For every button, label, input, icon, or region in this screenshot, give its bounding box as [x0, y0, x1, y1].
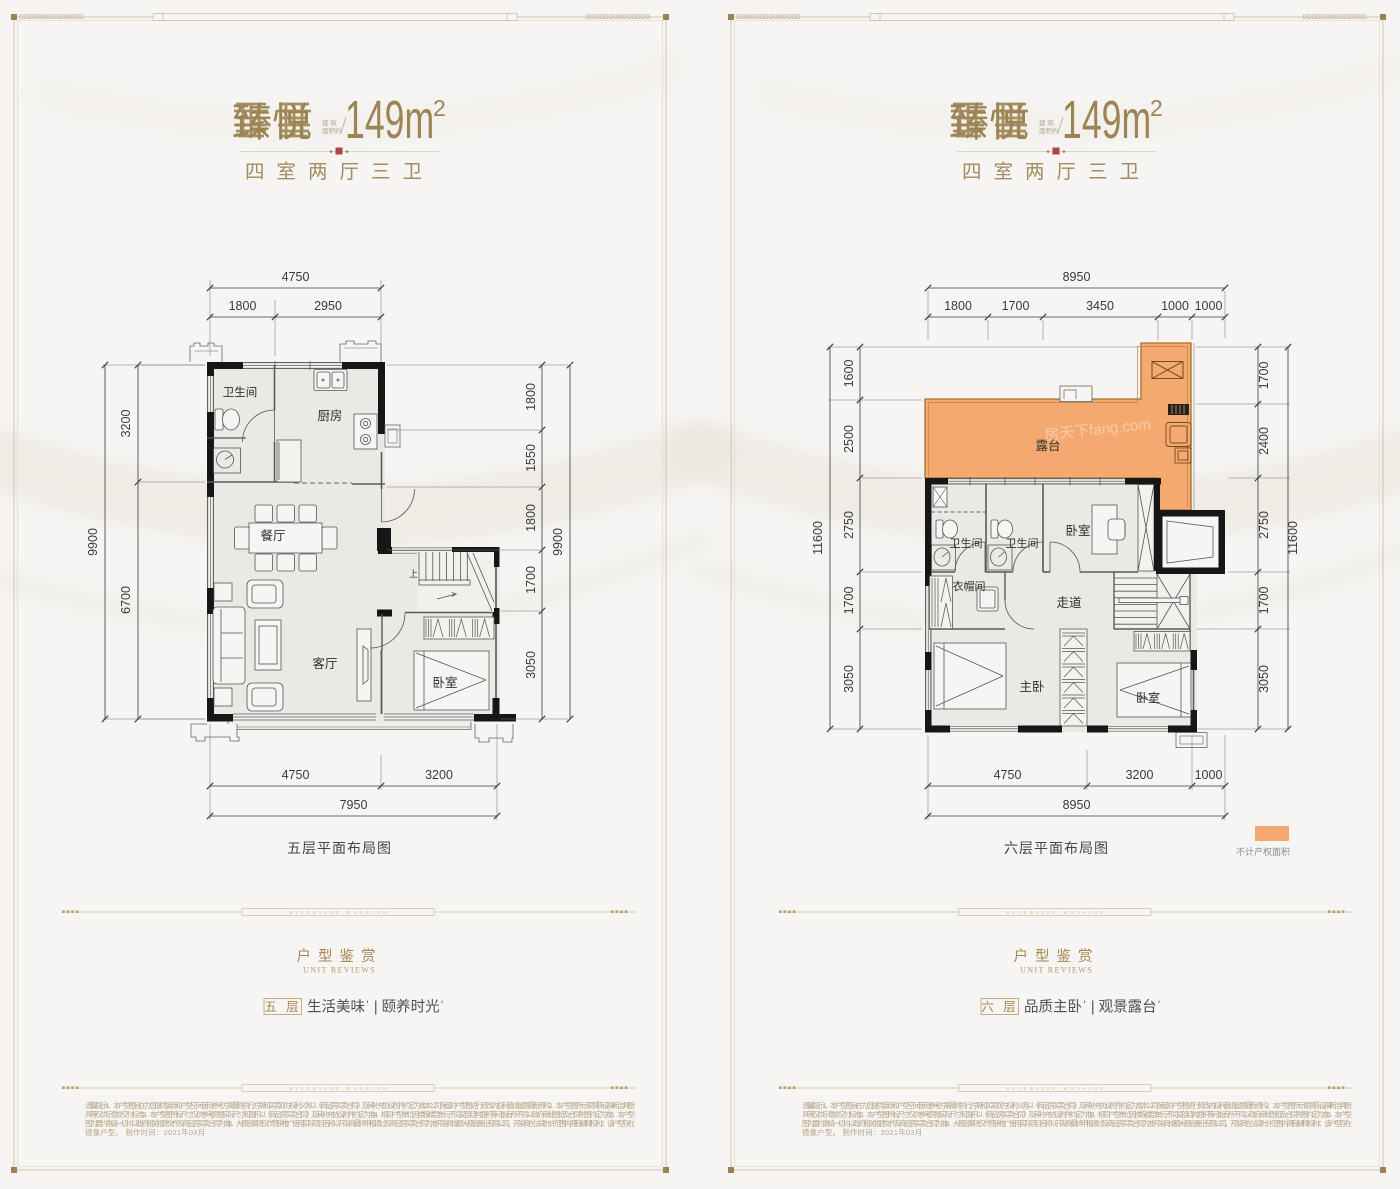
svg-text:8950: 8950 — [1063, 798, 1091, 812]
svg-text:图为要约邀请,一切均以政府相关报建文件及商品房买卖合同为准,: 图为要约邀请,一切均以政府相关报建文件及商品房买卖合同为准,6、大都会案场仅作营… — [802, 1119, 1352, 1128]
svg-text:1700: 1700 — [1002, 299, 1030, 313]
svg-text:1800: 1800 — [524, 504, 538, 532]
svg-text:镜像户型。 制作时间：2021年03月: 镜像户型。 制作时间：2021年03月 — [802, 1128, 922, 1137]
svg-text:2: 2 — [1150, 95, 1163, 121]
svg-text:2: 2 — [433, 95, 446, 121]
svg-text:1800: 1800 — [229, 299, 257, 313]
svg-text:RIVERSIDE MANSION: RIVERSIDE MANSION — [1006, 910, 1106, 915]
svg-text:客厅: 客厅 — [312, 656, 337, 671]
svg-text:不计产权面积: 不计产权面积 — [1236, 846, 1290, 857]
svg-text:温馨提示:1、本户型图旨在为您提供装修和户型空间使用参考方案: 温馨提示:1、本户型图旨在为您提供装修和户型空间使用参考方案,最终执行方案和买卖… — [802, 1101, 1352, 1110]
svg-text:11600: 11600 — [1286, 521, 1300, 555]
svg-text:走道: 走道 — [1056, 596, 1082, 610]
svg-text:镜像户型。 制作时间：2021年03月: 镜像户型。 制作时间：2021年03月 — [85, 1128, 205, 1137]
svg-text:卫生间: 卫生间 — [1006, 536, 1039, 550]
svg-text:1000: 1000 — [1195, 768, 1223, 782]
svg-text:1700: 1700 — [524, 566, 538, 594]
svg-text:四室两厅三卫: 四室两厅三卫 — [245, 161, 434, 183]
svg-text:6700: 6700 — [119, 586, 133, 614]
svg-text:2500: 2500 — [842, 425, 856, 453]
svg-text:露台: 露台 — [1035, 438, 1060, 453]
svg-text:卫生间: 卫生间 — [950, 536, 983, 550]
svg-text:3050: 3050 — [1257, 665, 1271, 693]
svg-text:卧室: 卧室 — [1136, 690, 1160, 705]
svg-text:3050: 3050 — [842, 665, 856, 693]
svg-text:3200: 3200 — [425, 768, 453, 782]
svg-text:RIVERSIDE MANSION: RIVERSIDE MANSION — [1006, 1086, 1106, 1091]
svg-text:1800: 1800 — [944, 299, 972, 313]
svg-text:3450: 3450 — [1086, 299, 1114, 313]
svg-text:上: 上 — [409, 569, 418, 579]
svg-text:图为要约邀请,一切均以政府相关报建文件及商品房买卖合同为准,: 图为要约邀请,一切均以政府相关报建文件及商品房买卖合同为准,6、大都会案场仅作营… — [85, 1119, 635, 1128]
svg-text:六 层: 六 层 — [981, 1000, 1018, 1014]
svg-text:2950: 2950 — [314, 299, 342, 313]
svg-text:9900: 9900 — [86, 528, 100, 556]
svg-text:具等仅供示意,非交付标准,3、本户型图所标尺寸仅供参考,房屋: 具等仅供示意,非交付标准,3、本户型图所标尺寸仅供参考,房屋实际尺寸和面积以《商… — [85, 1110, 635, 1119]
svg-text:五层平面布局图: 五层平面布局图 — [287, 840, 392, 856]
svg-text:生活美味ˈ | 颐养时光ˈ: 生活美味ˈ | 颐养时光ˈ — [307, 999, 444, 1016]
svg-text:3200: 3200 — [1126, 768, 1154, 782]
svg-text:2750: 2750 — [1257, 511, 1271, 539]
svg-text:1000: 1000 — [1195, 299, 1223, 313]
svg-text:9900: 9900 — [551, 528, 565, 556]
svg-text:卧室: 卧室 — [1065, 523, 1090, 538]
svg-text:衣帽间: 衣帽间 — [953, 579, 986, 593]
svg-text:1700: 1700 — [1257, 587, 1271, 615]
svg-text:厨房: 厨房 — [317, 408, 342, 423]
svg-text:3050: 3050 — [524, 651, 538, 679]
svg-text:RIVERSIDE MANSION: RIVERSIDE MANSION — [289, 910, 389, 915]
svg-text:8950: 8950 — [1063, 270, 1091, 284]
svg-text:1000: 1000 — [1161, 299, 1189, 313]
svg-text:具等仅供示意,非交付标准,3、本户型图所标尺寸仅供参考,房屋: 具等仅供示意,非交付标准,3、本户型图所标尺寸仅供参考,房屋实际尺寸和面积以《商… — [802, 1110, 1352, 1119]
svg-text:四室两厅三卫: 四室两厅三卫 — [962, 161, 1151, 183]
svg-text:建 筑: 建 筑 — [322, 118, 337, 127]
svg-text:1550: 1550 — [524, 444, 538, 472]
svg-text:UNIT REVIEWS: UNIT REVIEWS — [303, 966, 376, 975]
svg-text:1600: 1600 — [842, 360, 856, 388]
svg-text:4750: 4750 — [994, 768, 1022, 782]
svg-text:卫生间: 卫生间 — [223, 385, 258, 399]
svg-text:户型鉴赏: 户型鉴赏 — [1014, 948, 1100, 965]
svg-text:六层平面布局图: 六层平面布局图 — [1004, 840, 1109, 856]
svg-text:餐厅: 餐厅 — [260, 528, 285, 543]
svg-text:149m: 149m — [345, 90, 434, 150]
svg-text:4750: 4750 — [282, 768, 310, 782]
svg-text:户型鉴赏: 户型鉴赏 — [297, 948, 383, 965]
svg-text:149m: 149m — [1062, 90, 1151, 150]
svg-text:1700: 1700 — [842, 587, 856, 615]
svg-text:品质主卧ˈ | 观景露台ˈ: 品质主卧ˈ | 观景露台ˈ — [1024, 999, 1161, 1016]
svg-text:7950: 7950 — [340, 798, 368, 812]
svg-text:面积约: 面积约 — [322, 126, 342, 135]
svg-text:建 筑: 建 筑 — [1039, 118, 1054, 127]
svg-text:面积约: 面积约 — [1039, 126, 1059, 135]
svg-text:4750: 4750 — [282, 270, 310, 284]
svg-text:11600: 11600 — [811, 521, 825, 555]
svg-text:3200: 3200 — [119, 410, 133, 438]
svg-text:1800: 1800 — [524, 383, 538, 411]
svg-text:主卧: 主卧 — [1019, 680, 1044, 694]
svg-text:UNIT REVIEWS: UNIT REVIEWS — [1020, 966, 1093, 975]
svg-text:2400: 2400 — [1257, 427, 1271, 455]
svg-text:2750: 2750 — [842, 511, 856, 539]
svg-text:卧室: 卧室 — [432, 675, 457, 690]
svg-text:RIVERSIDE MANSION: RIVERSIDE MANSION — [289, 1086, 389, 1091]
svg-text:1700: 1700 — [1257, 362, 1271, 390]
svg-text:五 层: 五 层 — [264, 1000, 301, 1014]
svg-text:温馨提示:1、本户型图旨在为您提供装修和户型空间使用参考方案: 温馨提示:1、本户型图旨在为您提供装修和户型空间使用参考方案,最终执行方案和买卖… — [85, 1101, 635, 1110]
